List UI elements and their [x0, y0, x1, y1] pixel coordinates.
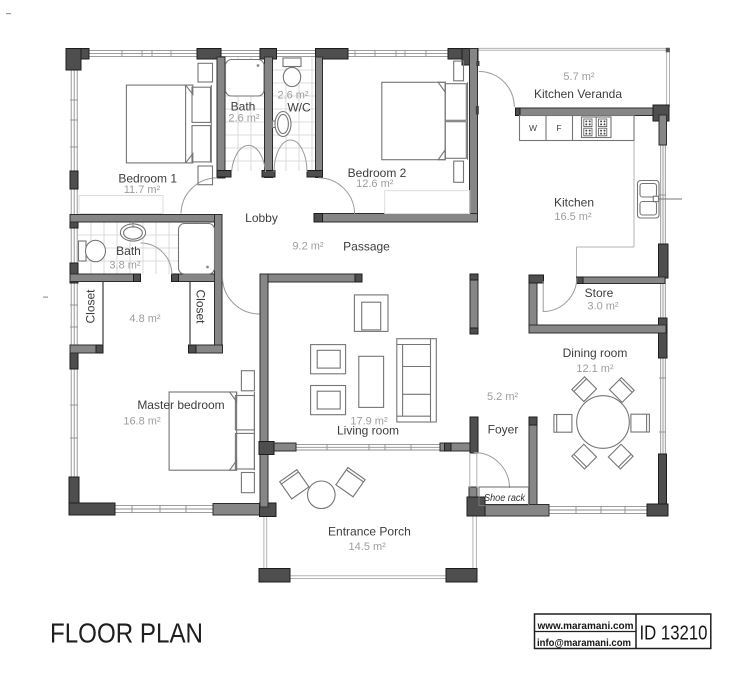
svg-text:16.5 m²: 16.5 m² [554, 211, 592, 223]
svg-text:Lobby: Lobby [245, 211, 278, 225]
svg-text:W: W [529, 123, 537, 133]
svg-text:Kitchen: Kitchen [554, 196, 594, 210]
svg-text:Living room: Living room [337, 424, 399, 438]
svg-text:Master bedroom: Master bedroom [137, 398, 224, 412]
svg-text:Bath: Bath [116, 244, 141, 258]
svg-text:ID 13210: ID 13210 [640, 623, 708, 645]
svg-text:3.8 m²: 3.8 m² [109, 260, 141, 272]
svg-text:www.maramani.com: www.maramani.com [537, 621, 634, 632]
svg-text:12.6 m²: 12.6 m² [356, 178, 394, 190]
svg-text:16.8 m²: 16.8 m² [123, 416, 161, 428]
svg-text:Passage: Passage [343, 240, 390, 254]
svg-text:F: F [556, 123, 561, 133]
svg-text:Foyer: Foyer [488, 423, 519, 437]
svg-text:Closet: Closet [84, 289, 98, 324]
svg-text:Bath: Bath [231, 100, 256, 114]
svg-text:Store: Store [585, 286, 614, 300]
svg-text:4.8 m²: 4.8 m² [129, 313, 161, 325]
svg-text:Kitchen Veranda: Kitchen Veranda [534, 87, 622, 101]
svg-text:14.5 m²: 14.5 m² [349, 541, 387, 553]
svg-text:3.0 m²: 3.0 m² [587, 301, 619, 313]
svg-text:info@maramani.com: info@maramani.com [537, 638, 631, 649]
svg-text:Shoe rack: Shoe rack [484, 493, 526, 504]
svg-text:11.7 m²: 11.7 m² [124, 184, 161, 196]
svg-text:12.1 m²: 12.1 m² [576, 363, 614, 375]
svg-text:5.2 m²: 5.2 m² [487, 391, 519, 403]
svg-text:Dining room: Dining room [563, 346, 628, 360]
svg-text:Entrance Porch: Entrance Porch [328, 525, 411, 539]
svg-text:Closet: Closet [194, 289, 208, 324]
svg-text:2.6 m²: 2.6 m² [228, 113, 260, 125]
svg-text:5.7 m²: 5.7 m² [563, 71, 595, 83]
svg-text:W/C: W/C [287, 101, 311, 115]
svg-text:9.2 m²: 9.2 m² [292, 241, 324, 253]
svg-text:FLOOR PLAN: FLOOR PLAN [50, 618, 203, 649]
